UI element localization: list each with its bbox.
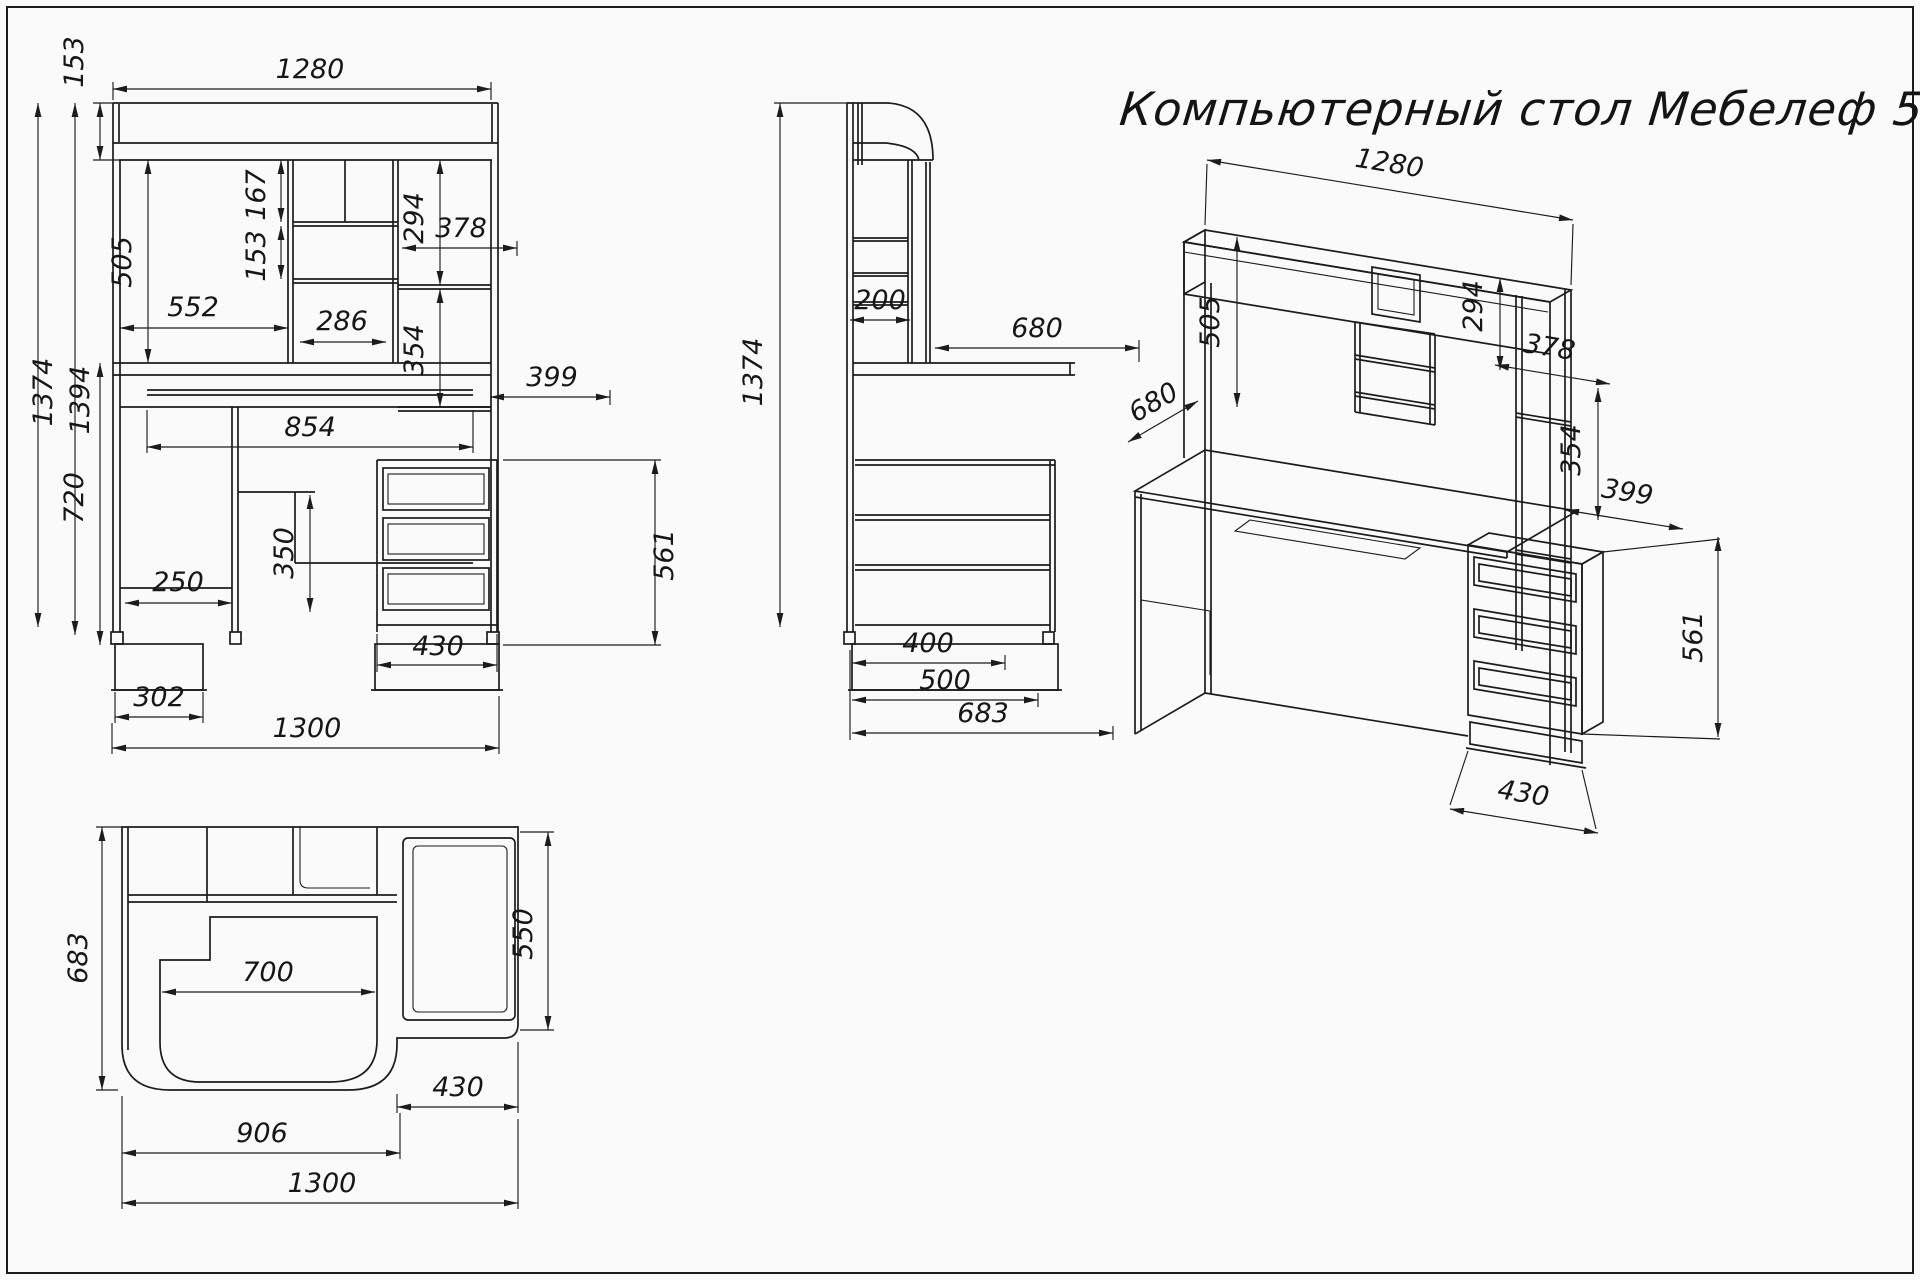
- dim-side-683: 683: [957, 698, 1009, 729]
- dim-side-1374: 1374: [738, 338, 769, 407]
- dim-top-700: 700: [242, 957, 294, 988]
- dim-front-286: 286: [316, 306, 368, 337]
- dim-side-400: 400: [902, 628, 954, 659]
- isometric-view: 1280 505 294 378 354 399 680 561 430: [1120, 130, 1860, 870]
- dim-front-desk-720: 720: [59, 472, 90, 524]
- dim-iso-378: 378: [1521, 328, 1577, 367]
- dim-front-1300: 1300: [273, 713, 342, 744]
- dim-top-906: 906: [236, 1118, 288, 1149]
- dim-iso-561: 561: [1678, 611, 1709, 663]
- side-view: 1374 200 680 400 500 683: [740, 10, 1160, 790]
- dim-top-550: 550: [508, 908, 539, 960]
- dim-front-552: 552: [167, 292, 219, 323]
- dim-front-hutch-505: 505: [107, 236, 138, 288]
- dim-front-354: 354: [399, 324, 430, 376]
- side-view-furniture: [844, 103, 1075, 690]
- dim-front-561: 561: [649, 529, 680, 581]
- dim-front-350: 350: [269, 527, 300, 579]
- dim-front-width-1280: 1280: [276, 54, 345, 85]
- dim-front-854: 854: [284, 412, 336, 443]
- front-view: 1280 153 1374 1394 720 505 552 167 153 2…: [25, 10, 685, 770]
- dim-iso-430: 430: [1495, 774, 1551, 813]
- drawing-title: Компьютерный стол Мебелеф 5: [1117, 82, 1920, 136]
- dim-top-683: 683: [63, 932, 94, 984]
- dim-iso-354: 354: [1556, 424, 1587, 476]
- dim-side-680: 680: [1011, 313, 1063, 344]
- dim-side-500: 500: [919, 665, 971, 696]
- side-view-dimensions: 1374 200 680 400 500 683: [738, 103, 1139, 740]
- top-view: 683 700 550 430 906 1300: [80, 820, 640, 1280]
- dim-front-294: 294: [399, 192, 430, 244]
- dim-front-height-1394: 1394: [65, 366, 96, 435]
- dim-front-crown-153: 153: [59, 36, 90, 88]
- dim-iso-294: 294: [1458, 280, 1489, 332]
- dim-iso-505: 505: [1195, 296, 1226, 348]
- dim-front-378: 378: [435, 213, 487, 244]
- front-view-furniture: [111, 103, 503, 690]
- dim-iso-399: 399: [1599, 473, 1655, 512]
- dim-iso-680: 680: [1124, 376, 1184, 429]
- dim-front-167: 167: [241, 169, 272, 221]
- dim-front-430: 430: [412, 631, 464, 662]
- dim-front-height-1374: 1374: [28, 358, 59, 427]
- dim-front-399: 399: [526, 362, 578, 393]
- technical-drawing-page: 1280 153 1374 1394 720 505 552 167 153 2…: [0, 0, 1920, 1280]
- top-view-furniture: [122, 827, 518, 1090]
- dim-side-200: 200: [854, 285, 906, 316]
- dim-top-430: 430: [432, 1072, 484, 1103]
- dim-front-302: 302: [133, 682, 185, 713]
- dim-front-153-mid: 153: [241, 230, 272, 282]
- dim-top-1300: 1300: [288, 1168, 357, 1199]
- dim-front-250: 250: [152, 567, 204, 598]
- dim-iso-1280: 1280: [1353, 143, 1426, 185]
- top-view-dimensions: 683 700 550 430 906 1300: [63, 827, 554, 1209]
